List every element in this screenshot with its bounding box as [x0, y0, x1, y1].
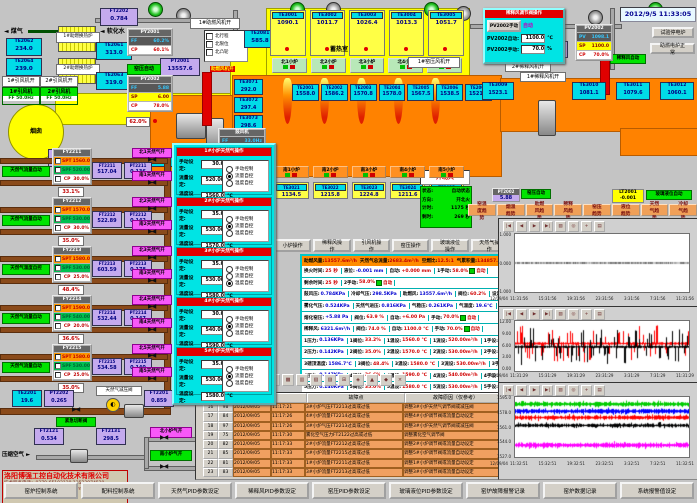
run-square-icon	[400, 65, 405, 69]
gas-flow-controller[interactable]: FY2215 SPT1580.0 SPF530.00 CP25.0%	[52, 344, 92, 381]
air-pipe-branch	[144, 466, 196, 471]
ytick: 1.000	[500, 232, 511, 237]
gas-flow-controller[interactable]: FY2211 SPT1560.0 SPF520.00 CP30.0%	[52, 148, 92, 185]
parameter-segment: 1阀位: 33.2%	[348, 338, 385, 344]
chart1-xticks: 12/09/0411:31:5615:31:5619:31:5623:31:56…	[490, 296, 694, 301]
parameter-segment: 自动: +0.000 mm	[387, 268, 435, 274]
radio-icon[interactable]	[226, 180, 233, 187]
parameter-segment: 3温设: 1580.0 ℃	[393, 361, 439, 367]
gas-operation-popup: 1#小炉天然气操作 手动设定: 30.0 % 流量设定: 520.00 m³/h	[172, 143, 276, 405]
radio-icon[interactable]	[226, 330, 233, 337]
parameter-row: 2压力: 0.142KPa 2阀位: 35.0% 2温设:	[302, 347, 510, 359]
parameter-segment: 阀位: 63.9 %	[352, 315, 388, 321]
chart-toolbar-icon[interactable]: +	[581, 221, 592, 232]
chart-toolbar-icon[interactable]: ▤	[594, 309, 605, 320]
te3009-indicator: TE30091523.1	[482, 82, 514, 100]
te-tag: TE3002	[312, 12, 344, 19]
chart-toolbar-icon[interactable]: ▶|	[542, 221, 553, 232]
section-title: 5#小炉天然气操作	[177, 348, 271, 356]
radio-icon[interactable]	[226, 280, 233, 287]
toolbar-icon[interactable]: ▥	[296, 374, 308, 386]
row-marker	[196, 459, 203, 468]
status-row: 剩时:269 秒	[422, 214, 470, 223]
mode-radio[interactable]: 手动控制	[226, 166, 268, 173]
field-label: 流量设定:	[179, 274, 199, 288]
radio-label: 温度自控	[235, 180, 253, 186]
checkbox-icon[interactable]	[55, 265, 61, 271]
south-port[interactable]: 南5小炉	[429, 166, 464, 178]
nav-button[interactable]: 窑炉数据记录	[543, 482, 617, 499]
py2001-controller[interactable]: PY2001 FF60.2%CP60.1%	[127, 28, 173, 56]
parameter-segment: 1压力: 0.136KPa	[302, 338, 348, 344]
valve-icon[interactable]: ▶◀	[148, 205, 155, 212]
stack-valve-pct: 62.0%	[126, 117, 150, 127]
toolbar-icon[interactable]: ▨	[324, 374, 336, 386]
run-square-icon	[285, 173, 290, 177]
nav-button[interactable]: 配料控制系统	[81, 482, 155, 499]
parameter-row: 雾化气压: 0.524KPa 天然气进压: 0.816KPa 气稳压:	[302, 301, 510, 313]
ytick: 1561.0	[497, 425, 511, 430]
chart2-yticks: 12.009.006.003.000.00	[484, 319, 511, 371]
parameter-segment: 冷却气压: 298.5KPa	[349, 291, 401, 297]
alarm-row[interactable]: 18 97 2012/09/05 11:17:26 3#小炉气压FT2213过高…	[196, 422, 506, 431]
mode-radio[interactable]: 手动控制	[226, 366, 268, 373]
field-label: 手动设定:	[179, 258, 199, 272]
radio-label: 手动控制	[235, 316, 253, 322]
parameter-segment: 换火时间: 25 秒	[302, 268, 342, 274]
stop-square-icon	[329, 65, 334, 69]
checkbox-icon[interactable]	[55, 354, 61, 360]
ytick: 6.00	[502, 343, 511, 348]
te-tag: TE3003	[351, 12, 383, 19]
id-fan1-box[interactable]: 1#引风机 FF 50.0Hz	[2, 87, 40, 105]
scada-screen: 烟囱 ◄ 煤气 FT22020.784 ◄ 软化水 1#助燃换热炉 2#助燃换热…	[0, 0, 697, 503]
run-square-icon	[363, 173, 368, 177]
radio-label: 流量自控	[235, 223, 253, 229]
chart-toolbar-icon[interactable]: ▨	[555, 221, 566, 232]
alarm-row[interactable]: 22 81 2012/09/05 11:17:33 1#小炉流量FT2211过高…	[196, 459, 506, 468]
operation-button-row: 小炉操作 稀释风操作 引风机操作 窑压操作 玻璃液位操作 天然气操作	[274, 239, 508, 252]
gas-operation-section: 1#小炉天然气操作 手动设定: 30.0 % 流量设定: 520.00 m³/h	[176, 147, 272, 195]
field-unit: ℃	[227, 394, 233, 399]
chart-toolbar-icon[interactable]: ▶	[529, 309, 540, 320]
id-fan2-status: 2#引风机开	[40, 76, 78, 87]
parameter-segment: 稀释风: 6321.6m³/h	[302, 326, 354, 332]
status-row: 状态:自动状态	[422, 188, 470, 197]
gas-mode-label: 天然气流量自动	[2, 166, 50, 177]
fy-tag: FY2212	[54, 199, 90, 205]
radio-label: 手动控制	[235, 216, 253, 222]
trend-button[interactable]: 窑温度趋势	[468, 204, 496, 216]
radio-icon[interactable]	[226, 223, 233, 230]
gas-flow-controller[interactable]: FY2213 SPT1580.0 SPF530.00 CP25.0%	[52, 246, 92, 283]
chart-toolbar-icon[interactable]: ◀	[516, 309, 527, 320]
chart-toolbar-icon[interactable]: ▤	[594, 385, 605, 396]
mode-radio[interactable]: 温度自控	[226, 180, 268, 187]
checkbox-icon[interactable]	[55, 216, 61, 222]
chart1-yticks: 1.0000.000-1.000	[478, 232, 511, 294]
trend-button[interactable]: 稀释风趋势	[554, 204, 582, 216]
chart-toolbar-icon[interactable]: |◀	[503, 221, 514, 232]
field-input[interactable]: 1580.0	[201, 392, 225, 401]
toolbar-icon[interactable]: ▲	[366, 374, 378, 386]
radio-label: 手动控制	[235, 266, 253, 272]
te-indicator: TE20031570.8	[350, 84, 377, 101]
toolbar-icon[interactable]: ×	[394, 374, 406, 386]
operation-button[interactable]: 小炉操作	[274, 239, 311, 252]
xtick: 19:31:29	[567, 373, 585, 378]
bottom-button-bar: 窑炉控制系统 配料控制系统 天然气PID参数设定 稀释风PID参数设定 窑压PI…	[4, 482, 694, 499]
checkbox-icon[interactable]	[55, 314, 61, 320]
py2002-tag: PY2002	[129, 77, 171, 83]
id-fan2-box[interactable]: 2#引风机 FF 50.0Hz	[40, 87, 78, 105]
checkbox-icon[interactable]	[55, 167, 61, 173]
valve-icon[interactable]: ▶◀	[72, 406, 79, 413]
xtick: 15:31:56	[538, 296, 556, 301]
mode-radio[interactable]: 温度自控	[226, 380, 268, 387]
mode-radio[interactable]: 手动控制	[226, 316, 268, 323]
radio-icon[interactable]	[226, 230, 233, 237]
radio-icon[interactable]	[226, 316, 233, 323]
mode-tag: 自动	[471, 326, 480, 332]
chart-toolbar-icon[interactable]: +	[581, 309, 592, 320]
north-port[interactable]: 北2小炉	[311, 58, 346, 73]
ft2202-indicator: FT22020.784	[100, 8, 138, 26]
company-name: 洛阳博强工控自动化技术有限公司	[4, 472, 126, 480]
parameter-segment: 2手动: 58.0% 自动	[342, 280, 395, 286]
valve-icon[interactable]: ▶◀	[148, 352, 155, 359]
south-port[interactable]: 南1小炉	[274, 166, 309, 178]
south-port[interactable]: 南3小炉	[352, 166, 387, 178]
xtick-date: 12/09/04	[490, 461, 508, 466]
checkbox-icon[interactable]	[55, 207, 61, 213]
mode-radio[interactable]: 流量自控	[226, 173, 268, 180]
checkbox-icon[interactable]	[55, 305, 61, 311]
spf-row: SPF530.00	[54, 362, 90, 370]
chart2-toolbar: |◀◀▶▶|▨◎+▤	[503, 309, 605, 320]
status-row: 计时:1175 秒	[422, 205, 470, 214]
valve-icon[interactable]: ▶◀	[148, 277, 155, 284]
toolbar-icon[interactable]: ⊞	[338, 374, 350, 386]
xtick: 3:31:29	[624, 373, 639, 378]
parameter-row: 3碹顶温度: 1586.7℃ 3阀位: 48.4% 3温设:	[302, 359, 510, 371]
chart2-xticks: 12/09/0411:31:2915:31:2919:31:2923:31:29…	[490, 373, 694, 378]
spf-row: SPF520.00	[54, 166, 90, 174]
chart2-plot[interactable]	[514, 320, 690, 372]
combustion-fan1-status: 1#助燃风机开	[190, 18, 240, 29]
dilution-valve-popup: 稀释风调节阀操作 PV2002手动 自动 PV2002自动:1100.0℃ PV…	[483, 8, 565, 64]
trend-button[interactable]: 助燃风趋势	[526, 204, 554, 216]
chart-toolbar-icon[interactable]: ▶|	[542, 385, 553, 396]
combustion-normal-button[interactable]: 助燃电炉正常	[650, 43, 695, 54]
pv2002-manual-button[interactable]: PV2002手动	[487, 20, 521, 32]
valve-icon[interactable]: ▶◀	[148, 254, 155, 261]
te-indicator: TE20021586.2	[321, 84, 348, 101]
parameter-segment: 1温设: 1560.0 ℃	[385, 338, 431, 344]
valve-icon[interactable]: ▶◀	[148, 303, 155, 310]
regenerator-te-box: TE3004 1013.3	[389, 10, 425, 56]
stop-square-icon	[292, 173, 297, 177]
controller-row: SP6.00	[129, 93, 171, 101]
valve-icon[interactable]: ▶◀	[148, 228, 155, 235]
toolbar-icon[interactable]: ▧	[310, 374, 322, 386]
gas-group: 天然气流量自动 FY2215 SPT1580.0 SPF530.00 CP25.…	[0, 342, 172, 391]
te-value: 1051.7	[429, 20, 463, 26]
controller-row: FF5.88	[129, 84, 171, 92]
radio-icon[interactable]	[226, 366, 233, 373]
parameter-segment: 3碹顶温度: 1586.7℃	[302, 361, 356, 367]
nav-button[interactable]: 天然气PID参数设定	[158, 482, 232, 499]
checkbox-icon[interactable]	[55, 372, 61, 378]
emergency-cutoff-label: 紧急切断阀	[56, 417, 96, 427]
radio-icon[interactable]	[226, 266, 233, 273]
trend-button[interactable]: 液位趋势	[612, 204, 640, 216]
crown-te-row: TE20011558.0 TE20021586.2 TE20031570.8 T…	[292, 84, 492, 101]
spt-row: SPT1590.0	[54, 304, 90, 312]
mode-radio[interactable]: 手动控制	[226, 216, 268, 223]
alarm-row[interactable]: 23 83 2012/09/05 11:17:33 3#小炉流量FT2213过高…	[196, 468, 506, 477]
xtick: 15:31:29	[538, 373, 556, 378]
pv2002-auto-input[interactable]: 1100.0	[521, 34, 545, 43]
chart-toolbar-icon[interactable]: ▨	[555, 385, 566, 396]
field-label: 手动设定:	[179, 358, 199, 372]
parameter-segment: 天然气进压: 0.816KPa	[354, 303, 410, 309]
ft-indicator: FT2215534.58	[92, 358, 122, 375]
control-mode-panel: 手动控制 流量自控 温度自控	[222, 310, 269, 342]
toolbar-icon[interactable]: ▩	[282, 374, 294, 386]
parameter-segment: 鼓风压: 0.784KPa	[302, 291, 349, 297]
toolbar-icon[interactable]: ◈	[352, 374, 364, 386]
air-meter	[70, 449, 88, 463]
mode-radio[interactable]: 流量自控	[226, 273, 268, 280]
south-port[interactable]: 南4小炉	[390, 166, 425, 178]
pv2002-controller[interactable]: PV2002 PV1098.1SP1100.0CP70.0%	[575, 24, 613, 61]
checkbox-icon[interactable]	[55, 158, 61, 164]
controller-row: FF60.2%	[129, 37, 171, 45]
gas-flow-controller[interactable]: FY2212 SPT1570.0 SPF530.00 CP30.0%	[52, 197, 92, 234]
toolbar-icon[interactable]: ◆	[380, 374, 392, 386]
valve-icon[interactable]: ▶◀	[148, 326, 155, 333]
run-square-icon	[361, 65, 366, 69]
cp-row: CP30.0%	[54, 175, 90, 183]
chart-toolbar-icon[interactable]: ◀	[516, 221, 527, 232]
row-marker	[196, 431, 203, 440]
xtick: 11:31:56	[676, 296, 694, 301]
regenerator-te-box: TE3001 1090.1	[270, 10, 306, 56]
ytick: -1.000	[498, 289, 511, 294]
gas-flow-controller[interactable]: FY2214 SPT1590.0 SPF540.00 CP20.0%	[52, 295, 92, 332]
regen-label: 蓄热室	[330, 44, 348, 53]
chart-toolbar-icon[interactable]: ◎	[568, 309, 579, 320]
radio-icon[interactable]	[226, 216, 233, 223]
py2002-controller[interactable]: PY2002 FF5.88SP6.00CP78.0%	[127, 75, 173, 112]
stop-square-icon	[370, 173, 375, 177]
radio-label: 温度自控	[235, 380, 253, 386]
fan-icon	[148, 2, 163, 17]
chart-toolbar-icon[interactable]: ▶|	[542, 309, 553, 320]
south-port[interactable]: 南2小炉	[313, 166, 348, 178]
checkbox-icon[interactable]	[55, 323, 61, 329]
mode-radio[interactable]: 温度自控	[226, 280, 268, 287]
radio-icon[interactable]	[226, 380, 233, 387]
te-indicator: TE3071292.0	[234, 79, 263, 95]
parameter-segment: 2温设: 1570.0 ℃	[385, 349, 431, 355]
alarm-row[interactable]: 17 84 2012/09/05 11:17:26 4#小炉流量FT2214过高…	[196, 412, 506, 421]
checkbox-icon[interactable]	[55, 363, 61, 369]
test-stop-button[interactable]: 试验停电炉	[652, 27, 694, 38]
cp-row: CP30.0%	[54, 224, 90, 232]
nav-button[interactable]: 窑压PID参数设定	[312, 482, 386, 499]
mode-radio[interactable]: 流量自控	[226, 223, 268, 230]
valve-icon[interactable]: ▶◀	[160, 463, 167, 470]
mode-radio[interactable]: 流量自控	[226, 373, 268, 380]
control-mode-panel: 手动控制 流量自控 温度自控	[222, 160, 269, 192]
te-tag: TE3005	[430, 12, 462, 19]
heat-exchanger-1-label: 1#助燃换热炉	[56, 32, 100, 43]
kiln-fan-status: 1#窑压风机开	[408, 57, 460, 68]
checkbox-icon[interactable]	[55, 274, 61, 280]
parameter-segment: 雾化气压: 0.524KPa	[302, 303, 354, 309]
checkbox-icon[interactable]	[55, 176, 61, 182]
chart1-plot[interactable]	[514, 233, 690, 293]
spt-row: SPT1570.0	[54, 206, 90, 214]
field-label: 流量设定:	[179, 174, 199, 188]
operation-button[interactable]: 玻璃液位操作	[431, 239, 468, 252]
fy-tag: FY2211	[54, 150, 90, 156]
furnace-right-step	[620, 128, 697, 156]
spf-row: SPF530.00	[54, 264, 90, 272]
ytick: 1595.0	[497, 395, 511, 400]
parameter-segment: 3流设: 530.00m³/h	[439, 361, 490, 367]
radio-label: 温度自控	[235, 280, 253, 286]
ft-indicator: FT2213603.59	[92, 260, 122, 277]
fy-tag: FY2215	[54, 346, 90, 352]
chart-toolbar-icon[interactable]: ▨	[555, 309, 566, 320]
reversal-item: 北行程	[206, 32, 246, 40]
chart-toolbar-icon[interactable]: ▶	[529, 221, 540, 232]
gas-operation-section: 3#小炉天然气操作 手动设定: 35.0 % 流量设定: 530.00 m³/h	[176, 247, 272, 295]
trend-button[interactable]: 天然气趋势	[641, 204, 669, 216]
nav-button[interactable]: 窑炉故障报警记录	[466, 482, 540, 499]
radio-label: 流量自控	[235, 273, 253, 279]
parameter-segment: 阀位: 74.0 %	[354, 326, 390, 332]
auto-square-icon	[464, 326, 470, 332]
field-label: 温度设定:	[179, 390, 199, 404]
chart-toolbar-icon[interactable]: +	[581, 385, 592, 396]
regenerator-te-box: TE3022 1215.8	[313, 182, 348, 199]
gas-mode-label: 天然气温度自控	[2, 264, 50, 275]
controller-row: SP1100.0	[577, 42, 611, 50]
heat-exchanger-2-label: 2#助燃换热炉	[56, 64, 100, 75]
chart-toolbar-icon[interactable]: ◀	[516, 385, 527, 396]
operation-button[interactable]: 稀释风操作	[313, 239, 350, 252]
chart-toolbar-icon[interactable]: ▶	[529, 385, 540, 396]
combustion-air-riser	[202, 72, 212, 126]
parameter-row: 1压力: 0.136KPa 1阀位: 33.2% 1温设:	[302, 336, 510, 348]
mode-radio[interactable]: 手动控制	[226, 266, 268, 273]
radio-label: 流量自控	[235, 323, 253, 329]
chart-toolbar-icon[interactable]: ◎	[568, 385, 579, 396]
section-title: 2#小炉天然气操作	[177, 198, 271, 206]
north-port[interactable]: 北3小炉	[350, 58, 385, 73]
mode-radio[interactable]: 温度自控	[226, 330, 268, 337]
arrow-left-icon: ◄	[4, 28, 9, 35]
south-ports: 南1小炉 南2小炉 南3小炉 南4小炉 南5小炉	[274, 166, 464, 178]
nav-button[interactable]: 窑炉控制系统	[4, 482, 78, 499]
checkbox-icon[interactable]	[55, 256, 61, 262]
state-square-icon	[206, 41, 213, 48]
controller-row: PV1098.1	[577, 33, 611, 41]
pt2202-indicator: PT22020.265	[44, 390, 74, 407]
row-marker	[196, 440, 203, 449]
chart3-plot[interactable]	[514, 396, 690, 458]
operation-button[interactable]: 窑压操作	[392, 239, 429, 252]
control-mode-panel: 手动控制 流量自控 温度自控	[222, 210, 269, 242]
te2064-indicator: TE2064239.0	[6, 58, 42, 76]
air-pipe	[36, 455, 148, 460]
radio-icon[interactable]	[226, 323, 233, 330]
alarm-row[interactable]: 19 75 2012/09/05 11:17:30 雾化空气压力FT2122过高…	[196, 431, 506, 440]
valve-icon[interactable]: ▶◀	[148, 375, 155, 382]
radio-icon[interactable]	[226, 373, 233, 380]
mode-radio[interactable]: 流量自控	[226, 323, 268, 330]
section-title: 3#小炉天然气操作	[177, 248, 271, 256]
ft2201-indicator: FT22010.859	[144, 390, 174, 407]
chart-toolbar-icon[interactable]: ▤	[594, 221, 605, 232]
state-square-icon	[206, 49, 213, 56]
alarm-dot-icon	[443, 47, 447, 51]
radio-icon[interactable]	[226, 173, 233, 180]
mode-radio[interactable]: 温度自控	[226, 230, 268, 237]
radio-icon[interactable]	[226, 166, 233, 173]
alarm-row[interactable]: 21 85 2012/09/05 11:17:33 5#小炉流量FT2215过高…	[196, 449, 506, 458]
operation-button[interactable]: 引风机操作	[353, 239, 390, 252]
alarm-row[interactable]: 20 82 2012/09/05 11:17:33 2#小炉流量FT2212过高…	[196, 440, 506, 449]
checkbox-icon[interactable]	[55, 225, 61, 231]
pv2002-manual-input[interactable]: 70.0	[521, 45, 545, 54]
te-indicator: TE20051567.5	[407, 84, 434, 101]
valve-icon[interactable]: ▶◀	[160, 434, 167, 441]
south-air-valve-label: 南小炉气开	[150, 450, 192, 461]
summary-item: 天然气总流量:2683.4m³/h	[360, 258, 419, 264]
gas-group: 天然气流量自动 FY2214 SPT1590.0 SPF540.00 CP20.…	[0, 293, 172, 342]
te-indicator: TE30111079.6	[616, 82, 650, 100]
te-value: 1011.7	[311, 20, 345, 26]
nav-button[interactable]: 玻璃液位PID参数设定	[389, 482, 463, 499]
field-label: 流量设定:	[179, 224, 199, 238]
run-square-icon	[322, 65, 327, 69]
reversal-item: 北限位	[206, 40, 246, 48]
summary-item: 助燃风量:13557.6m³/h	[304, 258, 357, 264]
xtick: 7:31:29	[650, 373, 665, 378]
north-port[interactable]: 北1小炉	[272, 58, 307, 73]
valve-icon[interactable]: ▶◀	[148, 179, 155, 186]
radio-icon[interactable]	[226, 273, 233, 280]
te-indicator: TE20011558.0	[292, 84, 319, 101]
radio-label: 流量自控	[235, 373, 253, 379]
row-marker	[196, 412, 203, 421]
chart-toolbar-icon[interactable]: ◎	[568, 221, 579, 232]
valve-icon[interactable]: ▶◀	[148, 156, 155, 163]
north-air-valve-label: 北小炉气开	[150, 427, 192, 438]
trend-button[interactable]: 窑压趋势	[583, 204, 611, 216]
xtick: 15:32:51	[538, 461, 556, 466]
nav-button[interactable]: 稀释风PID参数设定	[235, 482, 309, 499]
trend-button[interactable]: 冷却气趋势	[669, 204, 697, 216]
nav-button[interactable]: 系统报警值设定	[620, 482, 694, 499]
trend-button[interactable]: 烟温趋势	[497, 204, 525, 216]
id-fan1-freq: FF 50.0Hz	[3, 96, 39, 101]
